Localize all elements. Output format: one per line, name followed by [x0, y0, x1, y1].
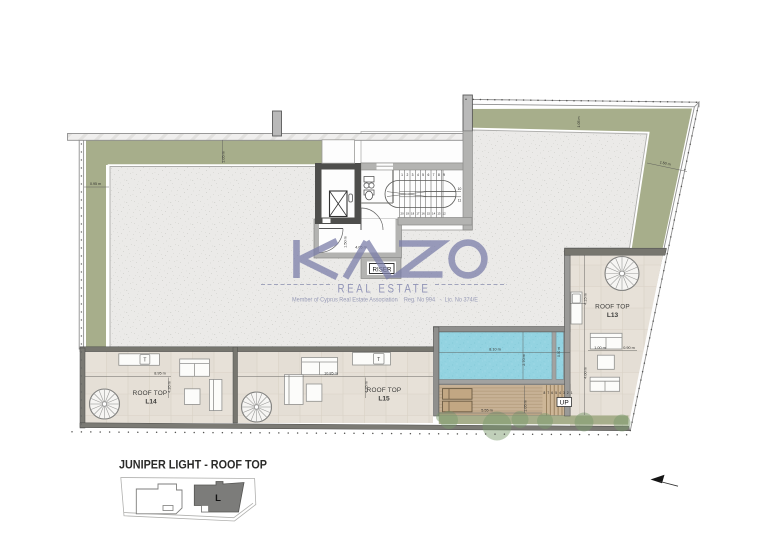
svg-text:12: 12 — [443, 212, 447, 216]
svg-text:10.85 m: 10.85 m — [324, 372, 338, 376]
svg-text:1.05 m: 1.05 m — [524, 400, 528, 412]
svg-text:5: 5 — [422, 173, 424, 177]
svg-text:4.15 m: 4.15 m — [584, 293, 588, 305]
svg-text:4.35 m: 4.35 m — [168, 381, 172, 393]
svg-text:JUNIPER LIGHT - ROOF TOP: JUNIPER LIGHT - ROOF TOP — [119, 458, 267, 472]
svg-text:L13: L13 — [607, 312, 619, 319]
svg-text:6: 6 — [551, 391, 553, 395]
svg-text:L15: L15 — [378, 396, 390, 403]
svg-text:REAL ESTATE: REAL ESTATE — [338, 282, 431, 296]
svg-text:15: 15 — [427, 212, 431, 216]
svg-text:1.00 m: 1.00 m — [594, 346, 606, 350]
svg-text:1: 1 — [571, 391, 573, 395]
svg-text:2: 2 — [567, 391, 569, 395]
svg-text:4: 4 — [559, 391, 561, 395]
svg-text:14: 14 — [432, 212, 436, 216]
svg-text:1.50 m: 1.50 m — [344, 236, 348, 248]
svg-text:1.05 m: 1.05 m — [222, 151, 226, 163]
svg-text:8: 8 — [544, 391, 546, 395]
svg-text:18: 18 — [411, 212, 415, 216]
svg-text:5.55 m: 5.55 m — [481, 409, 493, 413]
svg-text:2: 2 — [406, 173, 408, 177]
svg-text:11: 11 — [458, 199, 462, 203]
svg-text:4: 4 — [417, 173, 419, 177]
svg-text:Member of Cyprus Real Estate A: Member of Cyprus Real Estate Association… — [292, 297, 478, 304]
svg-text:T: T — [377, 357, 380, 363]
svg-text:19: 19 — [406, 212, 410, 216]
svg-text:4.35 m: 4.35 m — [365, 381, 369, 393]
svg-text:0.90 m: 0.90 m — [623, 346, 635, 350]
svg-text:2.70 m: 2.70 m — [522, 354, 526, 366]
svg-text:7: 7 — [433, 173, 435, 177]
svg-text:17: 17 — [416, 212, 420, 216]
svg-text:8: 8 — [438, 173, 440, 177]
svg-text:T: T — [143, 358, 146, 364]
svg-text:16: 16 — [422, 212, 426, 216]
svg-text:1: 1 — [401, 173, 403, 177]
svg-text:10: 10 — [458, 187, 462, 191]
svg-text:1.05 m: 1.05 m — [577, 117, 581, 128]
svg-text:20: 20 — [401, 212, 405, 216]
svg-text:3: 3 — [563, 391, 565, 395]
svg-text:ROOF TOP: ROOF TOP — [367, 387, 402, 394]
svg-text:9: 9 — [443, 173, 445, 177]
svg-text:3: 3 — [412, 173, 414, 177]
svg-text:ROOF TOP: ROOF TOP — [595, 304, 630, 311]
svg-text:4.00 m: 4.00 m — [584, 367, 588, 379]
svg-text:UP: UP — [560, 400, 569, 407]
svg-text:13: 13 — [437, 212, 441, 216]
svg-text:0.95 m: 0.95 m — [90, 182, 101, 186]
svg-text:ROOF TOP: ROOF TOP — [133, 390, 168, 397]
svg-text:0.90 m: 0.90 m — [557, 347, 561, 357]
svg-text:6: 6 — [427, 173, 429, 177]
svg-text:L: L — [215, 493, 221, 504]
svg-text:8.95 m: 8.95 m — [154, 372, 166, 376]
svg-text:8.10 m: 8.10 m — [489, 347, 501, 351]
svg-text:L14: L14 — [145, 399, 157, 406]
svg-text:5: 5 — [555, 391, 557, 395]
svg-text:7: 7 — [547, 391, 549, 395]
